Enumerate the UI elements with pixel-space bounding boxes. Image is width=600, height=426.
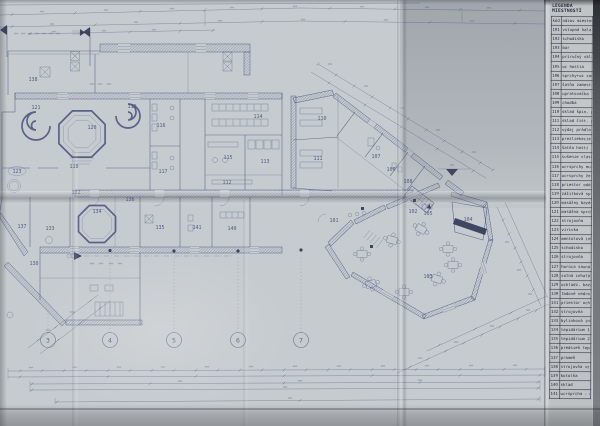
legend-row: 116wc+sprchy muži	[551, 162, 592, 171]
entrance-wing	[291, 63, 494, 196]
legend-room-code: 140	[550, 380, 560, 389]
room-label-117: 117	[158, 169, 167, 175]
room-label-116: 116	[156, 123, 165, 129]
legend-room-code: 132	[550, 307, 560, 316]
legend-room-name: horúca sauna	[560, 262, 591, 271]
room-label-136: 136	[125, 197, 134, 203]
legend-room-code: 112	[551, 126, 561, 135]
photo-background-edge	[593, 0, 600, 426]
legend-room-code: 101	[551, 25, 561, 34]
legend-room-name: schodisko	[561, 35, 592, 44]
legend-room-code: 129	[550, 280, 560, 289]
legend-room-name: sušenie vlasov	[561, 153, 592, 162]
legend-room-code: 121	[550, 207, 560, 216]
legend-row: 135tepidárium 2	[550, 335, 591, 344]
spiral-shower-121	[22, 112, 50, 140]
legend-room-name: príručný sklad	[561, 53, 592, 62]
legend-room-name: kotolňa	[560, 371, 591, 380]
room-label-112: 112	[222, 180, 231, 186]
legend-room-name: výdaj prádla	[561, 126, 592, 135]
room-label-121: 121	[31, 105, 40, 111]
legend-room-name: wc+sprchy ženy	[561, 171, 592, 180]
legend-room-code: 117	[551, 171, 561, 180]
legend-row: 120masážny bazén	[551, 198, 592, 207]
legend-top-shadow	[544, 0, 600, 6]
legend-room-name: strojovňa	[560, 253, 591, 262]
room-label-141: 141	[192, 225, 201, 231]
legend-row: 108upratovačka	[551, 89, 592, 98]
legend-room-name: strojovňa	[560, 307, 591, 316]
legend-room-name: sprchy+wc zamestn.	[561, 71, 592, 80]
room-label-104: 104	[463, 217, 472, 223]
room-legend-panel: LEGENDA MIESTNOSTÍ kód názov miestnosti …	[544, 0, 600, 426]
legend-room-name: masážna sprcha	[560, 207, 591, 216]
legend-row: 112výdaj prádla	[551, 126, 592, 135]
section-cut-marker	[67, 252, 232, 264]
legend-room-name: sklad	[560, 380, 591, 389]
legend-row: 132strojovňa	[550, 307, 591, 316]
floorplan-drawing: 34567 1381211191201161141231181151131171…	[0, 0, 600, 426]
legend-room-name: predsieň tepidária	[560, 344, 591, 353]
room-label-115: 115	[223, 155, 232, 161]
legend-row: 136predsieň tepidária	[550, 344, 591, 353]
legend-room-code: 114	[551, 144, 561, 153]
legend-room-name: priestor oddychu	[561, 180, 592, 189]
legend-row: 113prezliekacie kab.	[551, 135, 592, 144]
grid-bubble-number-7: 7	[299, 336, 303, 344]
legend-row: 110sklad špin. prádla	[551, 107, 592, 116]
legend-room-name: priestor ochladenia	[560, 298, 591, 307]
legend-paper: LEGENDA MIESTNOSTÍ kód názov miestnosti …	[548, 0, 594, 426]
legend-room-name: prezliekacie kab.	[561, 135, 592, 144]
legend-room-code: 135	[550, 335, 560, 344]
room-label-107: 107	[371, 154, 380, 160]
legend-room-name: chodba	[561, 98, 592, 107]
legend-header-code: kód	[551, 16, 561, 25]
legend-room-code: 111	[551, 116, 561, 125]
legend-room-name: wc hostia	[561, 62, 592, 71]
section-flag-markers	[0, 25, 90, 66]
legend-room-code: 126	[550, 253, 560, 262]
legend-room-name: schodisko	[560, 244, 591, 253]
legend-room-code: 116	[551, 162, 561, 171]
room-label-134: 134	[92, 209, 101, 215]
restaurant-hall	[318, 183, 493, 319]
legend-room-code: 120	[551, 198, 561, 207]
legend-room-code: 127	[550, 262, 560, 271]
legend-fold-crease	[544, 0, 550, 426]
legend-room-name: masážny bazén	[561, 198, 592, 207]
grid-bubble-number-6: 6	[236, 336, 240, 344]
grid-bubble-number-4: 4	[108, 336, 112, 344]
legend-room-name: tepidárium 1	[560, 326, 591, 335]
bottom-dimension-lines	[8, 365, 545, 404]
legend-row: 121masážna sprcha	[550, 207, 591, 216]
room-label-105: 105	[423, 211, 432, 217]
legend-row: 137prameň	[550, 353, 591, 362]
legend-table: kód názov miestnosti 101vstupná hala102s…	[549, 16, 593, 399]
room-label-102: 102	[408, 209, 417, 215]
room-label-135: 135	[155, 225, 164, 231]
legend-row: 117wc+sprchy ženy	[551, 171, 592, 180]
legend-row: 139kotolňa	[550, 371, 591, 380]
legend-row: 119zážitková sprcha	[551, 189, 592, 198]
legend-room-code: 137	[550, 353, 560, 362]
legend-row: 130ľadové vedro	[550, 289, 591, 298]
legend-row: 128soľná inhalácia	[550, 271, 591, 280]
legend-room-code: 105	[551, 62, 561, 71]
legend-room-code: 124	[550, 235, 560, 244]
legend-row: 115sušenie vlasov	[551, 153, 592, 162]
legend-room-code: 138	[550, 362, 560, 371]
legend-room-code: 106	[551, 71, 561, 80]
legend-room-name: soľná inhalácia	[560, 271, 591, 280]
room-label-120: 120	[87, 125, 96, 131]
grid-axis-bubbles: 34567	[41, 255, 309, 348]
legend-room-code: 110	[551, 107, 561, 116]
legend-row: 111sklad čist. prádla	[551, 116, 592, 125]
grid-bubble-number-5: 5	[172, 336, 176, 344]
legend-row: 118priestor oddychu	[551, 180, 592, 189]
legend-row: 126strojovňa	[550, 253, 591, 262]
legend-room-name: ochladz. bazén	[560, 280, 591, 289]
room-label-108: 108	[403, 179, 412, 185]
legend-row: 131priestor ochladenia	[550, 298, 591, 307]
legend-row: 114šatňa hostí	[551, 144, 592, 153]
room-label-110: 110	[317, 116, 326, 122]
legend-room-name: strojovňa	[560, 217, 591, 226]
legend-row: 133bylinková inhal.	[550, 316, 591, 325]
legend-room-name: šatňa hostí	[561, 144, 592, 153]
legend-room-code: 133	[550, 316, 560, 325]
legend-row: 101vstupná hala	[551, 25, 592, 34]
room-label-114: 114	[253, 114, 262, 120]
legend-room-code: 134	[550, 326, 560, 335]
legend-room-code: 141	[550, 389, 560, 398]
legend-body: 101vstupná hala102schodisko103bar104prír…	[550, 25, 593, 398]
legend-room-code: 104	[551, 53, 561, 62]
room-label-133: 133	[45, 226, 54, 232]
legend-room-code: 115	[551, 153, 561, 162]
massage-pool-octagon	[59, 111, 105, 164]
legend-row: 125schodisko	[550, 244, 591, 253]
legend-room-name: tepidárium 2	[560, 335, 591, 344]
legend-room-name: bar	[561, 44, 592, 53]
legend-room-code: 102	[551, 35, 561, 44]
legend-room-code: 122	[550, 216, 560, 225]
room-label-123: 123	[12, 169, 21, 175]
room-label-137: 137	[17, 224, 26, 230]
legend-room-code: 123	[550, 226, 560, 235]
room-label-111: 111	[313, 156, 322, 162]
legend-row: 107šatňa zamestnancov	[551, 80, 592, 89]
legend-room-name: mentolová inhal.	[560, 235, 591, 244]
small-steps	[364, 230, 383, 248]
grid-bubble-number-3: 3	[46, 336, 50, 344]
room-label-106: 106	[386, 167, 395, 173]
legend-room-code: 128	[550, 271, 560, 280]
legend-row: 129ochladz. bazén	[550, 280, 591, 289]
legend-header-name: názov miestnosti	[561, 16, 592, 25]
legend-room-name: sklad čist. prádla	[561, 116, 592, 125]
legend-room-name: strojovňa vzt	[560, 362, 591, 371]
legend-room-name: zážitková sprcha	[561, 189, 592, 198]
legend-room-code: 118	[551, 180, 561, 189]
legend-room-code: 139	[550, 371, 560, 380]
legend-room-code: 108	[551, 89, 561, 98]
legend-row: 122strojovňa	[550, 216, 591, 225]
legend-row: 103bar	[551, 44, 592, 53]
legend-header-row: kód názov miestnosti	[551, 16, 592, 25]
legend-row: 124mentolová inhal.	[550, 235, 591, 244]
room-label-101: 101	[329, 218, 338, 224]
legend-room-code: 119	[551, 189, 561, 198]
legend-row: 104príručný sklad	[551, 53, 592, 62]
legend-row: 138strojovňa vzt	[550, 362, 591, 371]
legend-room-name: šatňa zamestnancov	[561, 80, 592, 89]
legend-room-code: 125	[550, 244, 560, 253]
legend-row: 141wc+sprcha - muži	[550, 389, 591, 398]
plant-room-block	[8, 44, 250, 95]
legend-room-name: wc+sprcha - muži	[560, 389, 591, 398]
room-label-140: 140	[227, 226, 236, 232]
legend-room-name: sklad špin. prádla	[561, 107, 592, 116]
legend-room-code: 109	[551, 98, 561, 107]
room-label-130: 130	[29, 261, 38, 267]
legend-row: 102schodisko	[551, 35, 592, 44]
room-label-113: 113	[260, 159, 269, 165]
legend-row: 127horúca sauna	[550, 262, 591, 271]
legend-room-code: 131	[550, 298, 560, 307]
legend-row: 105wc hostia	[551, 62, 592, 71]
legend-room-code: 103	[551, 44, 561, 53]
room-label-132: 132	[71, 190, 80, 196]
legend-room-name: ľadové vedro	[560, 289, 591, 298]
room-label-118: 118	[69, 164, 78, 170]
legend-room-name: vstupná hala	[561, 26, 592, 35]
legend-room-code: 130	[550, 289, 560, 298]
legend-row: 106sprchy+wc zamestn.	[551, 71, 592, 80]
legend-room-name: wc+sprchy muži	[561, 162, 592, 171]
legend-row: 123vírivka	[550, 226, 591, 235]
legend-room-code: 136	[550, 344, 560, 353]
legend-room-name: bylinková inhal.	[560, 317, 591, 326]
room-label-103: 103	[423, 274, 432, 280]
floorplan-photo: 34567 1381211191201161141231181151131171…	[0, 0, 600, 426]
lower-left-block	[4, 253, 142, 354]
legend-row: 109chodba	[551, 98, 592, 107]
legend-row: 140sklad	[550, 380, 591, 389]
legend-row: 134tepidárium 1	[550, 326, 591, 335]
legend-room-code: 107	[551, 80, 561, 89]
room-label-119: 119	[127, 104, 136, 110]
room-label-138: 138	[28, 77, 37, 83]
legend-room-name: upratovačka	[561, 89, 592, 98]
legend-room-name: prameň	[560, 353, 591, 362]
legend-room-code: 113	[551, 135, 561, 144]
legend-room-name: vírivka	[560, 226, 591, 235]
